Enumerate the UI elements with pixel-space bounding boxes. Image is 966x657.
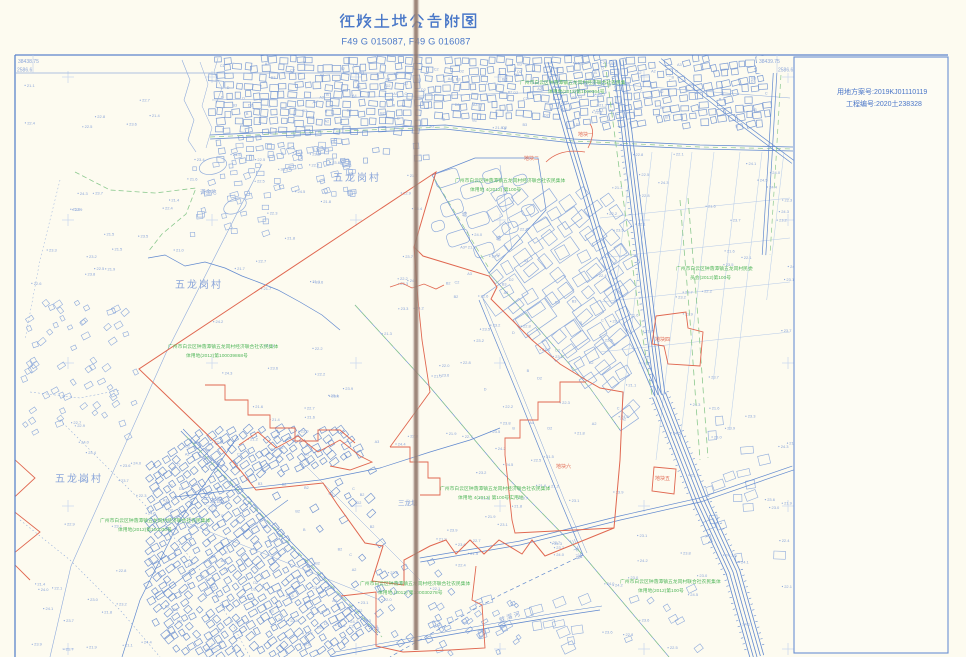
svg-text:23.2: 23.2 [779, 218, 788, 223]
svg-text:23.7: 23.7 [95, 191, 104, 196]
svg-text:23.6: 23.6 [332, 160, 341, 165]
svg-text:23.6: 23.6 [767, 497, 776, 502]
svg-text:21.8: 21.8 [338, 623, 347, 628]
svg-text:A4: A4 [352, 94, 357, 98]
svg-text:23.8: 23.8 [88, 272, 97, 277]
svg-text:23.8: 23.8 [683, 550, 692, 555]
svg-text:A2: A2 [236, 621, 241, 625]
svg-text:23.2: 23.2 [476, 338, 485, 343]
svg-text:A2: A2 [592, 422, 597, 426]
svg-text:D: D [187, 582, 190, 586]
svg-text:D: D [512, 331, 515, 335]
svg-text:22.1: 22.1 [676, 152, 685, 157]
svg-text:D2: D2 [421, 88, 426, 92]
svg-text:D2: D2 [455, 103, 460, 107]
svg-text:22.2: 22.2 [505, 404, 514, 409]
svg-text:22.7: 22.7 [142, 98, 151, 103]
svg-text:B3: B3 [752, 108, 757, 112]
svg-text:B3: B3 [258, 482, 263, 486]
svg-text:B: B [594, 71, 597, 75]
svg-text:22.1: 22.1 [744, 255, 753, 260]
svg-text:A2: A2 [659, 90, 664, 94]
svg-text:23.9: 23.9 [727, 426, 736, 431]
svg-text:21.4: 21.4 [37, 581, 46, 586]
svg-text:A2: A2 [611, 62, 616, 66]
svg-text:23.3: 23.3 [748, 414, 757, 419]
svg-text:D2: D2 [357, 501, 362, 505]
svg-text:21.9: 21.9 [488, 514, 497, 519]
svg-text:22.9: 22.9 [67, 522, 76, 527]
svg-text:C2: C2 [344, 607, 349, 611]
svg-text:B2: B2 [472, 119, 477, 123]
svg-text:D2: D2 [547, 427, 552, 431]
svg-text:B: B [393, 103, 396, 107]
svg-text:A4: A4 [356, 85, 361, 89]
svg-text:23.6: 23.6 [315, 280, 324, 285]
svg-text:D: D [177, 462, 180, 466]
svg-text:24.0: 24.0 [41, 587, 50, 592]
svg-text:21.3: 21.3 [615, 185, 624, 190]
svg-text:22.6: 22.6 [481, 293, 490, 298]
svg-text:广州市白云区钟落潭镇五龙岗村经济联合社农民集体: 广州市白云区钟落潭镇五龙岗村经济联合社农民集体 [455, 177, 566, 184]
svg-text:22.5: 22.5 [85, 124, 94, 129]
svg-text:C: C [765, 92, 768, 96]
svg-text:23.1: 23.1 [500, 522, 509, 527]
svg-text:B2: B2 [304, 486, 309, 490]
svg-text:D2: D2 [513, 91, 518, 95]
svg-text:广州市白云区钟落潭镇五龙岗村经济联合社农民集体: 广州市白云区钟落潭镇五龙岗村经济联合社农民集体 [168, 343, 279, 350]
svg-text:22.6: 22.6 [34, 281, 43, 286]
svg-text:23.3: 23.3 [401, 306, 410, 311]
svg-text:23.7: 23.7 [405, 254, 414, 259]
svg-text:22.8: 22.8 [463, 360, 472, 365]
svg-text:22.5: 22.5 [534, 458, 543, 463]
svg-text:24.3: 24.3 [781, 209, 790, 214]
svg-text:B2: B2 [386, 77, 391, 81]
svg-text:体用地 (2012) 第100030278号: 体用地 (2012) 第100030278号 [378, 589, 443, 596]
svg-text:B2: B2 [446, 282, 451, 286]
svg-text:22.5: 22.5 [641, 172, 650, 177]
svg-text:B2: B2 [637, 71, 642, 75]
svg-text:体用地(2012)第100030号: 体用地(2012)第100030号 [118, 526, 172, 533]
svg-text:22.4: 22.4 [458, 562, 467, 567]
svg-text:C2: C2 [220, 64, 225, 68]
svg-text:23.0: 23.0 [714, 434, 723, 439]
svg-text:23.7: 23.7 [66, 618, 75, 623]
svg-text:23.7: 23.7 [784, 328, 793, 333]
svg-text:A2: A2 [265, 62, 270, 66]
svg-text:22.1: 22.1 [290, 618, 299, 623]
svg-text:D: D [443, 117, 446, 121]
svg-text:A2: A2 [651, 69, 656, 73]
svg-text:23.6: 23.6 [442, 373, 451, 378]
svg-text:21.5: 21.5 [107, 232, 116, 237]
svg-text:23.6: 23.6 [312, 151, 321, 156]
svg-text:22.4: 22.4 [782, 538, 791, 543]
svg-text:A2: A2 [325, 120, 330, 124]
svg-text:B2: B2 [315, 561, 320, 565]
svg-text:22.7: 22.7 [473, 538, 482, 543]
svg-text:21.6: 21.6 [307, 415, 316, 420]
svg-text:地块五: 地块五 [655, 475, 670, 482]
svg-text:地块六: 地块六 [556, 463, 571, 470]
svg-text:C: C [668, 113, 671, 117]
svg-text:A4: A4 [578, 96, 583, 100]
svg-text:24.1: 24.1 [749, 161, 758, 166]
svg-text:21.7: 21.7 [305, 631, 314, 636]
svg-text:调金地: 调金地 [200, 188, 217, 196]
svg-text:23.2: 23.2 [119, 601, 128, 606]
svg-text:B3: B3 [502, 282, 507, 286]
svg-text:22.5: 22.5 [670, 645, 679, 650]
svg-text:A3: A3 [375, 440, 380, 444]
svg-text:22.8: 22.8 [636, 152, 645, 157]
svg-text:23.4: 23.4 [331, 393, 340, 398]
svg-text:22.4: 22.4 [599, 273, 608, 278]
svg-text:23.4: 23.4 [197, 157, 206, 162]
svg-text:23.2: 23.2 [89, 254, 98, 259]
svg-text:23.9: 23.9 [450, 528, 459, 533]
svg-text:员会(2012)第100号: 员会(2012)第100号 [690, 274, 731, 281]
svg-text:22.0: 22.0 [442, 363, 451, 368]
svg-text:五龙岗村: 五龙岗村 [333, 171, 381, 184]
svg-text:22.6: 22.6 [390, 570, 399, 575]
svg-text:22.9: 22.9 [77, 423, 86, 428]
svg-text:23.8: 23.8 [503, 420, 512, 425]
svg-text:A4: A4 [222, 500, 227, 504]
svg-text:C2: C2 [455, 280, 460, 284]
svg-text:23.2: 23.2 [678, 294, 687, 299]
svg-text:D: D [221, 96, 224, 100]
svg-text:23.9: 23.9 [345, 386, 354, 391]
svg-text:A3: A3 [677, 63, 682, 67]
svg-text:B2: B2 [514, 73, 519, 77]
svg-text:24.3: 24.3 [693, 402, 702, 407]
svg-text:22.3: 22.3 [270, 211, 279, 216]
svg-text:B3: B3 [456, 78, 461, 82]
svg-text:C: C [405, 92, 408, 96]
svg-text:D: D [397, 117, 400, 121]
svg-text:24.1: 24.1 [741, 560, 750, 565]
svg-text:22.3: 22.3 [562, 400, 571, 405]
svg-text:A4: A4 [208, 443, 213, 447]
svg-text:C2: C2 [403, 82, 408, 86]
svg-text:23.6: 23.6 [270, 366, 279, 371]
svg-text:24.3: 24.3 [781, 444, 790, 449]
svg-text:用地方案号:2019KJ01110119: 用地方案号:2019KJ01110119 [837, 87, 927, 96]
svg-text:D2: D2 [537, 377, 542, 381]
svg-text:D2: D2 [185, 445, 190, 449]
svg-text:D: D [188, 563, 191, 567]
svg-text:24.0: 24.0 [607, 581, 616, 586]
svg-text:21.4: 21.4 [272, 417, 281, 422]
svg-text:21.7: 21.7 [237, 266, 246, 271]
svg-text:D: D [486, 82, 489, 86]
svg-text:21.7: 21.7 [66, 647, 75, 652]
svg-text:A2: A2 [352, 568, 357, 572]
svg-text:B3: B3 [173, 608, 178, 612]
svg-text:A2: A2 [185, 453, 190, 457]
svg-text:22.2: 22.2 [704, 289, 713, 294]
svg-text:23.5: 23.5 [141, 234, 150, 239]
svg-text:B2: B2 [394, 72, 399, 76]
svg-text:21.6: 21.6 [286, 593, 295, 598]
svg-text:21.6: 21.6 [631, 313, 640, 318]
svg-text:C2: C2 [168, 484, 173, 488]
svg-text:21.8: 21.8 [577, 430, 586, 435]
svg-text:21.0: 21.0 [176, 247, 185, 252]
svg-text:B: B [719, 98, 722, 102]
svg-text:21.3: 21.3 [384, 331, 393, 336]
svg-text:22.2: 22.2 [609, 211, 618, 216]
svg-text:B2: B2 [508, 91, 513, 95]
svg-text:广州市白云区钟落潭镇五龙岗村经济联合社农民集体: 广州市白云区钟落潭镇五龙岗村经济联合社农民集体 [100, 517, 211, 524]
svg-text:22.8: 22.8 [97, 114, 106, 119]
svg-text:B2: B2 [338, 548, 343, 552]
svg-text:22.7: 22.7 [520, 226, 529, 231]
svg-text:B3: B3 [751, 77, 756, 81]
svg-text:C: C [640, 90, 643, 94]
svg-text:A3: A3 [467, 272, 472, 276]
svg-text:B: B [527, 369, 530, 373]
svg-text:D2: D2 [253, 581, 258, 585]
svg-text:21.9: 21.9 [784, 501, 793, 506]
svg-text:A3: A3 [163, 498, 168, 502]
svg-text:23.5: 23.5 [616, 228, 625, 233]
svg-text:23.0: 23.0 [699, 573, 708, 578]
svg-text:C2: C2 [434, 67, 439, 71]
svg-text:D: D [484, 387, 487, 391]
svg-text:D2: D2 [386, 84, 391, 88]
svg-text:24.2: 24.2 [216, 319, 225, 324]
svg-text:23.5: 23.5 [482, 327, 491, 332]
svg-text:A2: A2 [319, 96, 324, 100]
svg-text:22.7: 22.7 [685, 290, 694, 295]
svg-text:C: C [617, 407, 620, 411]
svg-text:24.4: 24.4 [398, 441, 407, 446]
svg-text:地块一: 地块一 [578, 131, 593, 138]
svg-text:22.4: 22.4 [27, 120, 36, 125]
svg-text:B3: B3 [269, 610, 274, 614]
svg-text:38438.75: 38438.75 [18, 59, 39, 65]
svg-text:21.6: 21.6 [255, 404, 264, 409]
svg-text:C2: C2 [262, 525, 267, 529]
svg-text:B: B [512, 427, 515, 431]
svg-text:21.1: 21.1 [27, 83, 36, 88]
svg-text:A3: A3 [390, 98, 395, 102]
svg-text:23.9: 23.9 [302, 642, 311, 647]
svg-text:A3: A3 [320, 73, 325, 77]
svg-text:B: B [576, 122, 579, 126]
svg-text:D2: D2 [302, 109, 307, 113]
svg-text:23.0: 23.0 [772, 505, 781, 510]
svg-text:广州市白云区钟落潭镇五龙岗村经济联合社农民集: 广州市白云区钟落潭镇五龙岗村经济联合社农民集 [520, 79, 626, 86]
svg-text:23.0: 23.0 [90, 597, 99, 602]
svg-text:22.4: 22.4 [165, 206, 174, 211]
svg-text:D2: D2 [179, 487, 184, 491]
svg-text:22.1: 22.1 [784, 584, 793, 589]
svg-text:21.9: 21.9 [449, 431, 458, 436]
svg-text:22.3: 22.3 [247, 596, 256, 601]
svg-text:22.7: 22.7 [258, 259, 267, 264]
svg-text:D: D [227, 86, 230, 90]
svg-text:21.9: 21.9 [89, 645, 98, 650]
svg-text:21.2: 21.2 [250, 437, 259, 442]
svg-text:23.6: 23.6 [123, 463, 132, 468]
svg-text:C2: C2 [349, 625, 354, 629]
svg-text:B3: B3 [271, 448, 276, 452]
svg-text:24.5: 24.5 [506, 462, 515, 467]
svg-text:22.1: 22.1 [638, 222, 647, 227]
svg-text:D2: D2 [168, 509, 173, 513]
svg-text:23.1: 23.1 [640, 533, 649, 538]
svg-text:B2: B2 [165, 604, 170, 608]
svg-text:B2: B2 [660, 106, 665, 110]
svg-text:24.3: 24.3 [661, 180, 670, 185]
svg-text:21.3: 21.3 [599, 102, 608, 107]
svg-text:B3: B3 [517, 63, 522, 67]
svg-text:22.3: 22.3 [785, 197, 794, 202]
svg-text:B3: B3 [572, 299, 577, 303]
svg-text:23.7: 23.7 [733, 218, 742, 223]
svg-text:21.4: 21.4 [575, 60, 584, 65]
svg-text:D2: D2 [509, 278, 514, 282]
svg-text:D2: D2 [317, 625, 322, 629]
svg-text:24.2: 24.2 [640, 558, 649, 563]
svg-text:A2: A2 [537, 87, 542, 91]
svg-text:22.1: 22.1 [278, 617, 287, 622]
svg-text:23.5: 23.5 [555, 354, 564, 359]
svg-text:22.2: 22.2 [312, 162, 321, 167]
svg-text:地块二: 地块二 [524, 155, 539, 162]
svg-text:23.2: 23.2 [493, 323, 502, 328]
svg-text:五龙岗村: 五龙岗村 [55, 472, 103, 485]
svg-text:D2: D2 [459, 69, 464, 73]
svg-text:体用地(2012)第100号: 体用地(2012)第100号 [638, 587, 684, 594]
svg-text:B: B [208, 449, 211, 453]
svg-text:24.0: 24.0 [556, 552, 565, 557]
svg-text:C: C [601, 318, 604, 322]
svg-text:B: B [246, 112, 249, 116]
svg-text:24.0: 24.0 [81, 440, 90, 445]
svg-text:21.5: 21.5 [115, 247, 124, 252]
svg-text:22.1: 22.1 [54, 585, 63, 590]
svg-text:F49 G 015087, F49 G 016087: F49 G 015087, F49 G 016087 [341, 37, 470, 47]
svg-text:23.7: 23.7 [313, 585, 322, 590]
svg-text:21.8: 21.8 [514, 504, 523, 509]
svg-text:A3: A3 [460, 246, 465, 250]
svg-text:21.9: 21.9 [73, 207, 82, 212]
svg-text:21.4: 21.4 [152, 113, 161, 118]
svg-text:21.1: 21.1 [628, 382, 637, 387]
svg-text:B2: B2 [360, 493, 365, 497]
svg-text:21.1: 21.1 [125, 643, 134, 648]
svg-text:23.5: 23.5 [233, 152, 242, 157]
svg-text:D2: D2 [248, 104, 253, 108]
svg-text:23.0: 23.0 [301, 429, 310, 434]
svg-text:23.6: 23.6 [642, 618, 651, 623]
svg-text:21.8: 21.8 [495, 125, 504, 130]
svg-text:22.2: 22.2 [315, 346, 324, 351]
svg-text:22.5: 22.5 [257, 179, 266, 184]
svg-text:B3: B3 [233, 103, 238, 107]
svg-text:21.5: 21.5 [546, 454, 555, 459]
svg-text:C2: C2 [353, 64, 358, 68]
svg-text:三太街: 三太街 [203, 495, 223, 504]
svg-text:23.7: 23.7 [121, 478, 130, 483]
svg-text:B2: B2 [370, 525, 375, 529]
svg-text:2586.6: 2586.6 [17, 68, 33, 74]
svg-text:广州市白云区钟落潭镇五龙岗村联合社农民集体: 广州市白云区钟落潭镇五龙岗村联合社农民集体 [620, 578, 721, 585]
svg-text:D2: D2 [347, 109, 352, 113]
svg-text:24.5: 24.5 [298, 189, 307, 194]
svg-text:B2: B2 [380, 112, 385, 116]
svg-text:23.1: 23.1 [572, 498, 581, 503]
svg-text:体用地 4(2012) 第100号实用地: 体用地 4(2012) 第100号实用地 [458, 494, 524, 501]
svg-text:广州市白云区钟落潭镇五龙岗村经济联合社农民集体: 广州市白云区钟落潭镇五龙岗村经济联合社农民集体 [440, 485, 551, 492]
svg-text:22.5: 22.5 [595, 110, 604, 115]
svg-text:广州市白云区钟落潭镇五龙岗村民委: 广州市白云区钟落潭镇五龙岗村民委 [676, 265, 753, 272]
svg-text:D2: D2 [224, 568, 229, 572]
svg-text:22.8: 22.8 [626, 632, 635, 637]
svg-text:B: B [326, 93, 329, 97]
svg-text:B3: B3 [523, 123, 528, 127]
svg-text:23.9: 23.9 [34, 642, 43, 647]
svg-text:B2: B2 [295, 509, 300, 513]
svg-text:D2: D2 [304, 452, 309, 456]
svg-text:C2: C2 [290, 68, 295, 72]
svg-text:C: C [225, 551, 228, 555]
svg-text:23.1: 23.1 [361, 600, 370, 605]
svg-text:工程编号:2020土238328: 工程编号:2020土238328 [846, 99, 922, 108]
svg-text:D: D [324, 622, 327, 626]
svg-text:C2: C2 [523, 97, 528, 101]
svg-text:A4: A4 [313, 100, 318, 104]
svg-text:21.6: 21.6 [708, 204, 717, 209]
svg-text:23.7: 23.7 [711, 374, 720, 379]
svg-text:24.1: 24.1 [46, 606, 55, 611]
svg-text:2586.6: 2586.6 [778, 68, 794, 74]
svg-text:A2: A2 [211, 585, 216, 589]
svg-text:22.7: 22.7 [307, 405, 316, 410]
svg-text:地块四: 地块四 [655, 336, 670, 343]
svg-text:B2: B2 [340, 67, 345, 71]
svg-text:B2: B2 [572, 96, 577, 100]
svg-text:21.4: 21.4 [171, 197, 180, 202]
svg-text:D2: D2 [251, 588, 256, 592]
svg-text:24.0: 24.0 [474, 232, 483, 237]
svg-text:21.6: 21.6 [712, 406, 721, 411]
svg-text:23.6: 23.6 [605, 630, 614, 635]
svg-text:24.5: 24.5 [690, 592, 699, 597]
svg-text:24.4: 24.4 [144, 640, 153, 645]
svg-text:22.2: 22.2 [317, 372, 326, 377]
svg-text:24.5: 24.5 [148, 511, 157, 516]
svg-text:C: C [424, 73, 427, 77]
svg-text:体用地(2012)第1000364号: 体用地(2012)第1000364号 [548, 88, 605, 95]
svg-text:塘: 塘 [462, 211, 467, 218]
svg-text:C: C [669, 79, 672, 83]
svg-text:C: C [352, 487, 355, 491]
svg-text:D: D [242, 96, 245, 100]
svg-text:C: C [285, 635, 288, 639]
svg-text:22.9: 22.9 [613, 319, 622, 324]
svg-text:23.4: 23.4 [88, 450, 97, 455]
svg-text:24.3: 24.3 [80, 191, 89, 196]
svg-text:22.0: 22.0 [384, 597, 393, 602]
svg-text:24.0: 24.0 [772, 170, 781, 175]
svg-text:24.2: 24.2 [350, 619, 359, 624]
